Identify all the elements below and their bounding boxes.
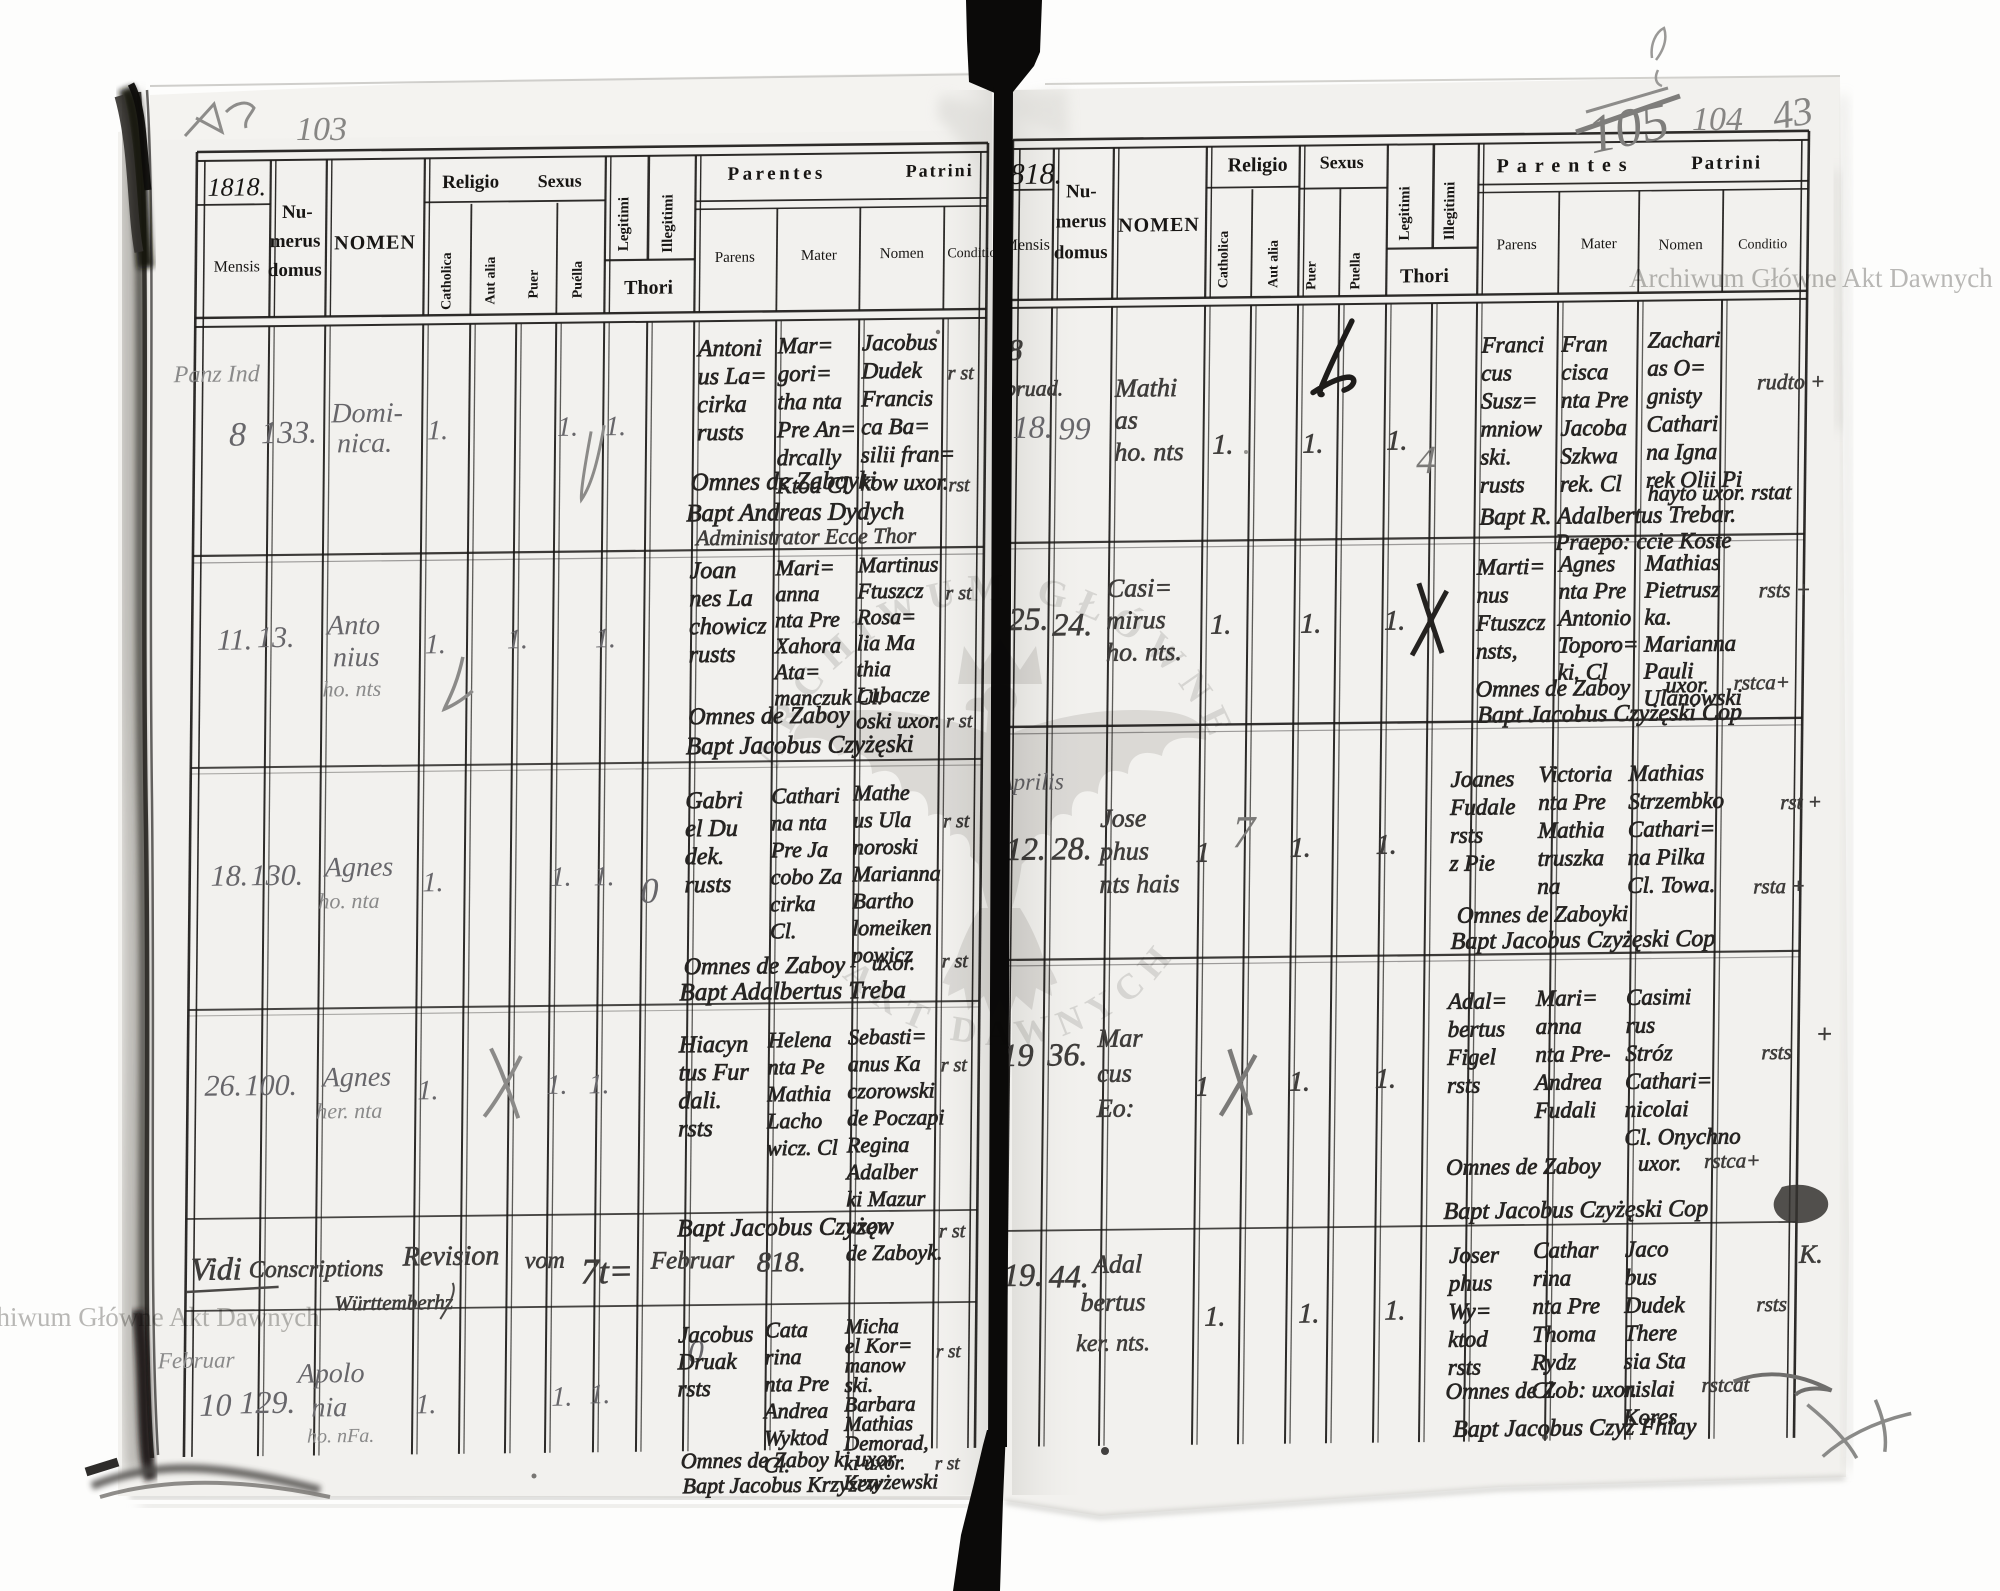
svg-text:wicz. Cl: wicz. Cl — [767, 1135, 838, 1161]
svg-text:1818.: 1818. — [207, 172, 266, 202]
svg-text:Revision: Revision — [402, 1240, 500, 1272]
svg-text:Jose: Jose — [1100, 803, 1147, 833]
svg-text:Pre Ja: Pre Ja — [770, 837, 828, 863]
svg-text:Francis: Francis — [860, 386, 933, 412]
svg-text:Rydz: Rydz — [1531, 1349, 1577, 1375]
svg-text:Lacho: Lacho — [766, 1108, 822, 1134]
svg-text:Adal=: Adal= — [1446, 988, 1507, 1014]
svg-text:1.: 1. — [588, 1069, 609, 1100]
svg-text:Pietrusz: Pietrusz — [1644, 577, 1721, 603]
svg-text:bertus: bertus — [1448, 1016, 1506, 1042]
svg-text:Mari=: Mari= — [1535, 985, 1598, 1011]
svg-text:Mathias: Mathias — [1644, 550, 1721, 576]
svg-text:rusts: rusts — [689, 642, 736, 669]
svg-text:1.: 1. — [1386, 425, 1407, 456]
svg-text:Martinus: Martinus — [857, 551, 939, 577]
svg-text:Illegitimi: Illegitimi — [1442, 182, 1459, 241]
svg-text:1.: 1. — [551, 1382, 572, 1413]
svg-text:Omnes de Zaboyki: Omnes de Zaboyki — [1457, 901, 1628, 928]
svg-text:rst: rst — [948, 474, 970, 496]
svg-text:130.: 130. — [251, 859, 304, 893]
svg-text:Vidi: Vidi — [191, 1250, 242, 1287]
svg-text:1.: 1. — [1298, 1298, 1319, 1329]
svg-text:rsts: rsts — [678, 1116, 713, 1142]
svg-text:nsts,: nsts, — [1476, 638, 1518, 663]
svg-text:nta Pre: nta Pre — [1561, 387, 1629, 413]
svg-text:1.: 1. — [1375, 1063, 1396, 1094]
svg-text:cus: cus — [1097, 1059, 1132, 1088]
svg-text:r st: r st — [941, 1054, 968, 1076]
svg-text:Legitimi: Legitimi — [1397, 186, 1414, 240]
svg-text:Puer: Puer — [1304, 261, 1319, 290]
svg-text:Cathari=: Cathari= — [1625, 1068, 1712, 1094]
svg-text:Mathia: Mathia — [766, 1081, 831, 1107]
svg-text:rek. Cl: rek. Cl — [1560, 471, 1622, 497]
svg-text:1.: 1. — [1300, 608, 1321, 639]
svg-text:18.: 18. — [1012, 408, 1052, 444]
svg-text:nius: nius — [333, 642, 380, 674]
svg-text:1.: 1. — [427, 415, 448, 446]
svg-text:anna: anna — [1536, 1013, 1582, 1039]
svg-text:Marianna: Marianna — [1643, 631, 1736, 657]
svg-text:Helena: Helena — [767, 1027, 832, 1053]
svg-text:Mathias: Mathias — [1627, 760, 1704, 786]
svg-text:Bapt Jacobus Czyż Fhlay: Bapt Jacobus Czyż Fhlay — [1453, 1414, 1697, 1443]
svg-text:nta Pre: nta Pre — [1532, 1293, 1600, 1319]
svg-text:rsts: rsts — [1447, 1072, 1481, 1097]
svg-text:Antoni: Antoni — [696, 335, 762, 362]
svg-text:Nomen: Nomen — [1659, 237, 1704, 254]
svg-text:Antonio: Antonio — [1556, 605, 1631, 631]
svg-text:Thori: Thori — [1400, 265, 1450, 288]
svg-text:cobo Za: cobo Za — [771, 864, 843, 890]
svg-text:Bapt Jacobus Czyżęw: Bapt Jacobus Czyżęw — [677, 1213, 894, 1242]
svg-text:rusts: rusts — [684, 872, 731, 899]
svg-text:103: 103 — [296, 111, 347, 148]
svg-text:Gabri: Gabri — [685, 788, 743, 815]
svg-text:Adal: Adal — [1091, 1249, 1142, 1279]
svg-text:domus: domus — [1054, 242, 1108, 264]
svg-text:26.: 26. — [204, 1069, 242, 1102]
svg-text:4: 4 — [1416, 437, 1437, 482]
svg-text:Jaco: Jaco — [1625, 1236, 1669, 1261]
svg-text:Administrator Ecce Thor: Administrator Ecce Thor — [694, 523, 917, 551]
svg-text:Lubacze: Lubacze — [855, 682, 930, 708]
svg-text:Aut alia: Aut alia — [483, 257, 498, 305]
svg-text:ski.: ski. — [1480, 444, 1512, 469]
svg-text:Sexus: Sexus — [1320, 152, 1364, 173]
svg-text:Figel: Figel — [1446, 1044, 1496, 1070]
svg-text:1.: 1. — [1289, 1066, 1310, 1097]
svg-text:Pre An=: Pre An= — [776, 416, 856, 442]
svg-text:Cata: Cata — [765, 1317, 808, 1342]
svg-text:nus: nus — [1477, 582, 1509, 607]
svg-text:Joan: Joan — [690, 558, 737, 585]
svg-text:rsts: rsts — [1756, 1292, 1787, 1316]
svg-text:13.: 13. — [257, 621, 295, 654]
svg-text:nia: nia — [311, 1392, 347, 1423]
svg-text:1.: 1. — [415, 1389, 436, 1420]
svg-text:bruad.: bruad. — [1005, 375, 1063, 401]
svg-text:Omnes de Zaboy ki uxor: Omnes de Zaboy ki uxor — [681, 1446, 897, 1473]
svg-text:na Igna: na Igna — [1646, 439, 1717, 465]
svg-text:na: na — [1537, 874, 1560, 899]
svg-text:phus: phus — [1098, 836, 1149, 866]
svg-text:1.: 1. — [1290, 832, 1311, 863]
svg-text:Februar: Februar — [650, 1247, 735, 1275]
svg-text:Anto: Anto — [325, 610, 380, 642]
svg-text:cirka: cirka — [770, 891, 815, 917]
svg-text:1.: 1. — [589, 1379, 610, 1410]
svg-text:Cathar: Cathar — [1533, 1237, 1600, 1263]
svg-text:Cathari: Cathari — [1647, 411, 1719, 437]
svg-text:Puélla: Puélla — [570, 261, 585, 299]
svg-text:nts hais: nts hais — [1099, 869, 1180, 899]
svg-text:ho. nta: ho. nta — [318, 888, 379, 914]
svg-text:el Du: el Du — [685, 816, 738, 843]
svg-text:Domi-: Domi- — [330, 398, 403, 430]
svg-text:1.: 1. — [1384, 1295, 1405, 1326]
svg-text:nta Pre-: nta Pre- — [1535, 1041, 1610, 1067]
svg-text:1.: 1. — [594, 861, 615, 892]
svg-text:1.: 1. — [1210, 609, 1231, 640]
svg-text:cirka: cirka — [697, 392, 747, 419]
svg-text:1.: 1. — [557, 412, 578, 443]
svg-text:Fudali: Fudali — [1534, 1097, 1597, 1123]
svg-text:rstca+: rstca+ — [1704, 1148, 1760, 1173]
svg-text:Omnes de Zob: uxor.: Omnes de Zob: uxor. — [1445, 1377, 1637, 1404]
svg-text:Strzembko: Strzembko — [1628, 788, 1724, 814]
svg-text:1: 1 — [1196, 838, 1210, 869]
svg-text:merus: merus — [1056, 211, 1107, 233]
svg-text:Bapt Jacobus Czyżęski Cop: Bapt Jacobus Czyżęski Cop — [1477, 700, 1742, 729]
svg-text:Omnes de Zaboy: Omnes de Zaboy — [684, 952, 846, 980]
svg-text:10: 10 — [199, 1386, 231, 1422]
svg-text:Joanes: Joanes — [1450, 766, 1514, 792]
svg-text:Catholica: Catholica — [439, 252, 455, 310]
svg-text:r st: r st — [936, 1341, 962, 1362]
svg-text:domus: domus — [268, 260, 322, 282]
svg-text:as: as — [1115, 406, 1138, 435]
svg-text:ho. nFa.: ho. nFa. — [307, 1425, 374, 1448]
svg-text:1.: 1. — [1384, 605, 1405, 636]
svg-text:cus: cus — [1481, 360, 1512, 385]
svg-text:nta Pre: nta Pre — [1559, 578, 1627, 604]
svg-text:Andrea: Andrea — [762, 1398, 828, 1424]
svg-text:phus: phus — [1447, 1270, 1493, 1296]
svg-text:100.: 100. — [244, 1069, 297, 1103]
svg-text:Dudek: Dudek — [861, 358, 923, 384]
svg-text:nica.: nica. — [337, 428, 393, 460]
svg-text:7t=: 7t= — [581, 1251, 634, 1292]
svg-text:Druak: Druak — [677, 1349, 738, 1375]
svg-text:mniow: mniow — [1480, 416, 1542, 442]
svg-text:Februar: Februar — [157, 1347, 236, 1373]
svg-text:noroski: noroski — [853, 834, 918, 860]
svg-text:Wy=: Wy= — [1448, 1298, 1491, 1323]
svg-text:as O=: as O= — [1647, 355, 1706, 381]
svg-text:Archiwum Główne Akt Dawnych: Archiwum Główne Akt Dawnych — [0, 1302, 320, 1332]
svg-text:Panz Ind: Panz Ind — [173, 361, 261, 388]
svg-text:Marianna: Marianna — [852, 860, 941, 886]
svg-text:K.: K. — [1798, 1240, 1823, 1269]
svg-text:104: 104 — [1692, 101, 1743, 138]
svg-text:Fudale: Fudale — [1449, 794, 1515, 820]
svg-text:Conditio: Conditio — [947, 246, 996, 262]
svg-text:1.: 1. — [422, 867, 443, 898]
svg-text:nicolai: nicolai — [1625, 1096, 1689, 1122]
svg-text:43: 43 — [1769, 87, 1816, 138]
svg-text:Mensis: Mensis — [214, 258, 260, 276]
svg-text:Casimi: Casimi — [1626, 984, 1691, 1010]
svg-text:ho. nts: ho. nts — [1114, 437, 1184, 467]
svg-text:Thori: Thori — [624, 277, 674, 300]
svg-text:Dudek: Dudek — [1623, 1292, 1685, 1318]
svg-text:rudto +: rudto + — [1757, 369, 1825, 395]
svg-text:Illegitimi: Illegitimi — [660, 194, 677, 253]
svg-text:rusts: rusts — [1480, 472, 1525, 498]
svg-text:us Ula: us Ula — [853, 807, 911, 833]
svg-text:rsts: rsts — [1450, 822, 1484, 847]
svg-text:rstca+: rstca+ — [1734, 670, 1790, 695]
svg-text:Mari=: Mari= — [775, 555, 835, 581]
svg-text:Patrini: Patrini — [1691, 152, 1762, 174]
svg-text:NOMEN: NOMEN — [334, 231, 416, 254]
svg-text:Aut alia: Aut alia — [1266, 240, 1282, 288]
svg-text:Omnes de Zaboy: Omnes de Zaboy — [1475, 675, 1631, 702]
svg-text:us La=: us La= — [698, 363, 767, 390]
svg-text:gori=: gori= — [778, 361, 832, 387]
svg-text:ker. nts.: ker. nts. — [1076, 1330, 1150, 1357]
svg-text:nta Pre: nta Pre — [1538, 789, 1606, 815]
svg-text:merus: merus — [270, 231, 321, 253]
svg-text:sia Sta: sia Sta — [1624, 1348, 1686, 1374]
svg-text:8: 8 — [229, 416, 246, 453]
svg-text:z Pie: z Pie — [1448, 850, 1495, 876]
svg-text:Nu-: Nu- — [282, 202, 313, 223]
svg-text:Parens: Parens — [715, 250, 755, 266]
svg-text:anna: anna — [775, 581, 819, 607]
svg-text:Nu-: Nu- — [1066, 181, 1097, 202]
svg-text:lomeiken: lomeiken — [852, 914, 932, 940]
svg-text:1.: 1. — [425, 629, 446, 660]
svg-text:Bapt Jacobus Krzyżew: Bapt Jacobus Krzyżew — [682, 1471, 882, 1498]
svg-text:Jacobus: Jacobus — [678, 1321, 754, 1347]
svg-text:uxor.: uxor. — [1638, 1150, 1682, 1175]
svg-text:133.: 133. — [261, 414, 317, 451]
svg-text:Patrini: Patrini — [906, 160, 974, 181]
svg-text:Mater: Mater — [1581, 236, 1617, 252]
svg-text:her. nta: her. nta — [316, 1098, 382, 1124]
svg-text:czorowski: czorowski — [847, 1077, 934, 1103]
svg-text:There: There — [1624, 1320, 1677, 1346]
svg-text:Mathi: Mathi — [1114, 373, 1177, 403]
svg-text:cisca: cisca — [1561, 359, 1609, 385]
svg-text:Agnes: Agnes — [321, 1062, 392, 1094]
svg-text:Susz=: Susz= — [1481, 388, 1538, 414]
svg-text:nta Pre: nta Pre — [775, 607, 840, 633]
svg-text:Württemberhz: Württemberhz — [334, 1290, 453, 1315]
svg-text:nta Pre: nta Pre — [764, 1371, 829, 1397]
svg-text:1.: 1. — [546, 1070, 567, 1101]
svg-text:NOMEN: NOMEN — [1118, 214, 1200, 237]
svg-text:Mathia: Mathia — [1537, 817, 1605, 843]
svg-text:Hiacyn: Hiacyn — [678, 1032, 749, 1059]
svg-text:nes La: nes La — [689, 586, 753, 613]
svg-text:rina: rina — [1533, 1265, 1572, 1290]
svg-text:rsts: rsts — [1761, 1040, 1792, 1064]
svg-text:rsts +: rsts + — [1759, 577, 1811, 603]
svg-text:tha nta: tha nta — [777, 389, 842, 415]
svg-text:ka.: ka. — [1644, 604, 1672, 629]
svg-text:Thoma: Thoma — [1532, 1321, 1596, 1347]
svg-text:ca Ba=: ca Ba= — [861, 414, 930, 440]
svg-text:Franci: Franci — [1480, 332, 1544, 358]
svg-text:Bartho: Bartho — [852, 888, 913, 914]
svg-text:818.: 818. — [757, 1247, 806, 1279]
svg-text:Stróz: Stróz — [1625, 1040, 1673, 1066]
svg-text:1.: 1. — [551, 862, 572, 893]
svg-text:vom: vom — [525, 1248, 565, 1274]
svg-text:dali.: dali. — [678, 1088, 722, 1114]
svg-text:r st: r st — [935, 1453, 961, 1474]
svg-text:Bapt Jacobus Czyżęski Cop: Bapt Jacobus Czyżęski Cop — [1443, 1196, 1708, 1225]
svg-text:Szkwa: Szkwa — [1560, 443, 1618, 469]
svg-text:1.: 1. — [605, 411, 626, 442]
svg-text:Jacobus: Jacobus — [862, 329, 938, 355]
svg-text:rina: rina — [765, 1344, 802, 1369]
svg-text:1: 1 — [1195, 1072, 1209, 1103]
svg-text:silii fran=: silii fran= — [861, 441, 955, 467]
svg-text:Fran: Fran — [1560, 331, 1607, 357]
svg-text:Zachari: Zachari — [1647, 327, 1720, 353]
svg-text:drcally: drcally — [777, 445, 842, 471]
svg-text:Omnes de Zaboyki: Omnes de Zaboyki — [690, 467, 876, 496]
svg-text:11.: 11. — [217, 623, 253, 656]
svg-text:de Zaboyk.: de Zaboyk. — [846, 1239, 943, 1265]
svg-text:Marti=: Marti= — [1476, 554, 1545, 580]
svg-text:129.: 129. — [239, 1384, 295, 1421]
svg-text:Conditio: Conditio — [1738, 237, 1787, 253]
svg-text:Mar=: Mar= — [777, 333, 833, 359]
svg-text:Ftuszcz: Ftuszcz — [1475, 610, 1545, 636]
svg-text:Mater: Mater — [801, 248, 837, 264]
svg-text:18.: 18. — [211, 859, 249, 892]
svg-text:na Pilka: na Pilka — [1628, 844, 1706, 870]
svg-text:Agnes: Agnes — [1557, 551, 1616, 577]
svg-text:r st: r st — [948, 362, 975, 384]
svg-text:Cathari: Cathari — [771, 783, 840, 809]
svg-text:7: 7 — [1232, 806, 1258, 857]
svg-text:anus Ka: anus Ka — [848, 1051, 921, 1077]
svg-text:Puer: Puer — [526, 270, 541, 299]
svg-text:Religio: Religio — [1228, 154, 1288, 177]
svg-text:nta Pe: nta Pe — [768, 1054, 825, 1080]
svg-text:na nta: na nta — [771, 810, 827, 836]
svg-text:rus: rus — [1626, 1012, 1656, 1037]
svg-text:ho. nts: ho. nts — [322, 676, 381, 702]
svg-text:Cl.: Cl. — [770, 918, 797, 943]
svg-text:Cathari=: Cathari= — [1628, 816, 1715, 842]
svg-text:28.: 28. — [1052, 830, 1092, 866]
svg-text:0: 0 — [640, 871, 658, 911]
svg-text:dek.: dek. — [685, 844, 725, 870]
svg-text:Bapt R. Adalbertus Trebar.: Bapt R. Adalbertus Trebar. — [1479, 502, 1736, 531]
svg-text:1.: 1. — [595, 623, 616, 654]
svg-text:Bapt Jacobus Czyżęski Cop: Bapt Jacobus Czyżęski Cop — [1451, 926, 1716, 955]
svg-text:Apolo: Apolo — [296, 1358, 365, 1390]
svg-text:Nomen: Nomen — [880, 246, 925, 263]
svg-text:Cl. Onychno: Cl. Onychno — [1624, 1123, 1741, 1149]
svg-text:Victoria: Victoria — [1538, 761, 1612, 787]
svg-text:Catholica: Catholica — [1216, 231, 1232, 289]
svg-text:Toporo=: Toporo= — [1558, 632, 1639, 658]
svg-text:Omnes de Zaboy: Omnes de Zaboy — [1446, 1153, 1602, 1180]
svg-text:de Poczapi: de Poczapi — [847, 1104, 944, 1130]
svg-text:Eo:: Eo: — [1096, 1093, 1135, 1122]
svg-text:gnisty: gnisty — [1647, 383, 1703, 409]
svg-text:Conscriptions: Conscriptions — [249, 1256, 384, 1284]
svg-text:1.: 1. — [1376, 829, 1397, 860]
svg-text:rsts: rsts — [1448, 1354, 1482, 1379]
svg-text:rst +: rst + — [1780, 790, 1822, 814]
svg-text:1.: 1. — [1212, 429, 1233, 460]
svg-text:bus: bus — [1625, 1264, 1657, 1289]
svg-text:bertus: bertus — [1080, 1287, 1145, 1317]
svg-text:+: + — [1815, 1019, 1833, 1048]
svg-text:rsta +: rsta + — [1753, 874, 1805, 899]
svg-text:r st: r st — [939, 1220, 966, 1242]
svg-text:1.: 1. — [417, 1075, 438, 1106]
svg-text:Religio: Religio — [442, 172, 499, 194]
svg-text:1.: 1. — [1204, 1301, 1225, 1332]
svg-text:Andrea: Andrea — [1533, 1069, 1602, 1095]
svg-text:Cl. Towa.: Cl. Towa. — [1627, 872, 1715, 898]
svg-text:1.: 1. — [1302, 428, 1323, 459]
svg-text:chowicz: chowicz — [689, 613, 767, 640]
svg-text:Parens: Parens — [1497, 237, 1537, 253]
svg-text:rsts: rsts — [677, 1376, 711, 1401]
svg-text:Adalber: Adalber — [845, 1159, 919, 1185]
svg-text:thia: thia — [857, 656, 891, 681]
svg-text:Archiwum Główne Akt Dawnych: Archiwum Główne Akt Dawnych — [1629, 263, 1993, 293]
svg-text:Agnes: Agnes — [323, 852, 394, 884]
svg-text:99: 99 — [1058, 410, 1090, 446]
svg-text:1.: 1. — [507, 624, 528, 655]
svg-text:Regina: Regina — [846, 1132, 910, 1158]
svg-text:Puella: Puella — [1348, 252, 1363, 290]
svg-text:ktod: ktod — [1448, 1326, 1488, 1351]
svg-text:Joser: Joser — [1449, 1242, 1500, 1268]
svg-text:Parentes: Parentes — [727, 163, 826, 185]
svg-text:rusts: rusts — [697, 420, 744, 447]
svg-text:truszka: truszka — [1538, 845, 1605, 871]
svg-text:Jacoba: Jacoba — [1560, 415, 1627, 441]
svg-text:tus Fur: tus Fur — [679, 1060, 750, 1087]
svg-text:Legitimi: Legitimi — [616, 197, 633, 251]
svg-text:Sexus: Sexus — [538, 171, 582, 192]
svg-text:uxor.: uxor. — [1666, 672, 1710, 697]
svg-text:ki Mazur: ki Mazur — [846, 1186, 926, 1212]
svg-text:19.: 19. — [1003, 1256, 1043, 1292]
svg-text:rstcat: rstcat — [1701, 1372, 1750, 1397]
